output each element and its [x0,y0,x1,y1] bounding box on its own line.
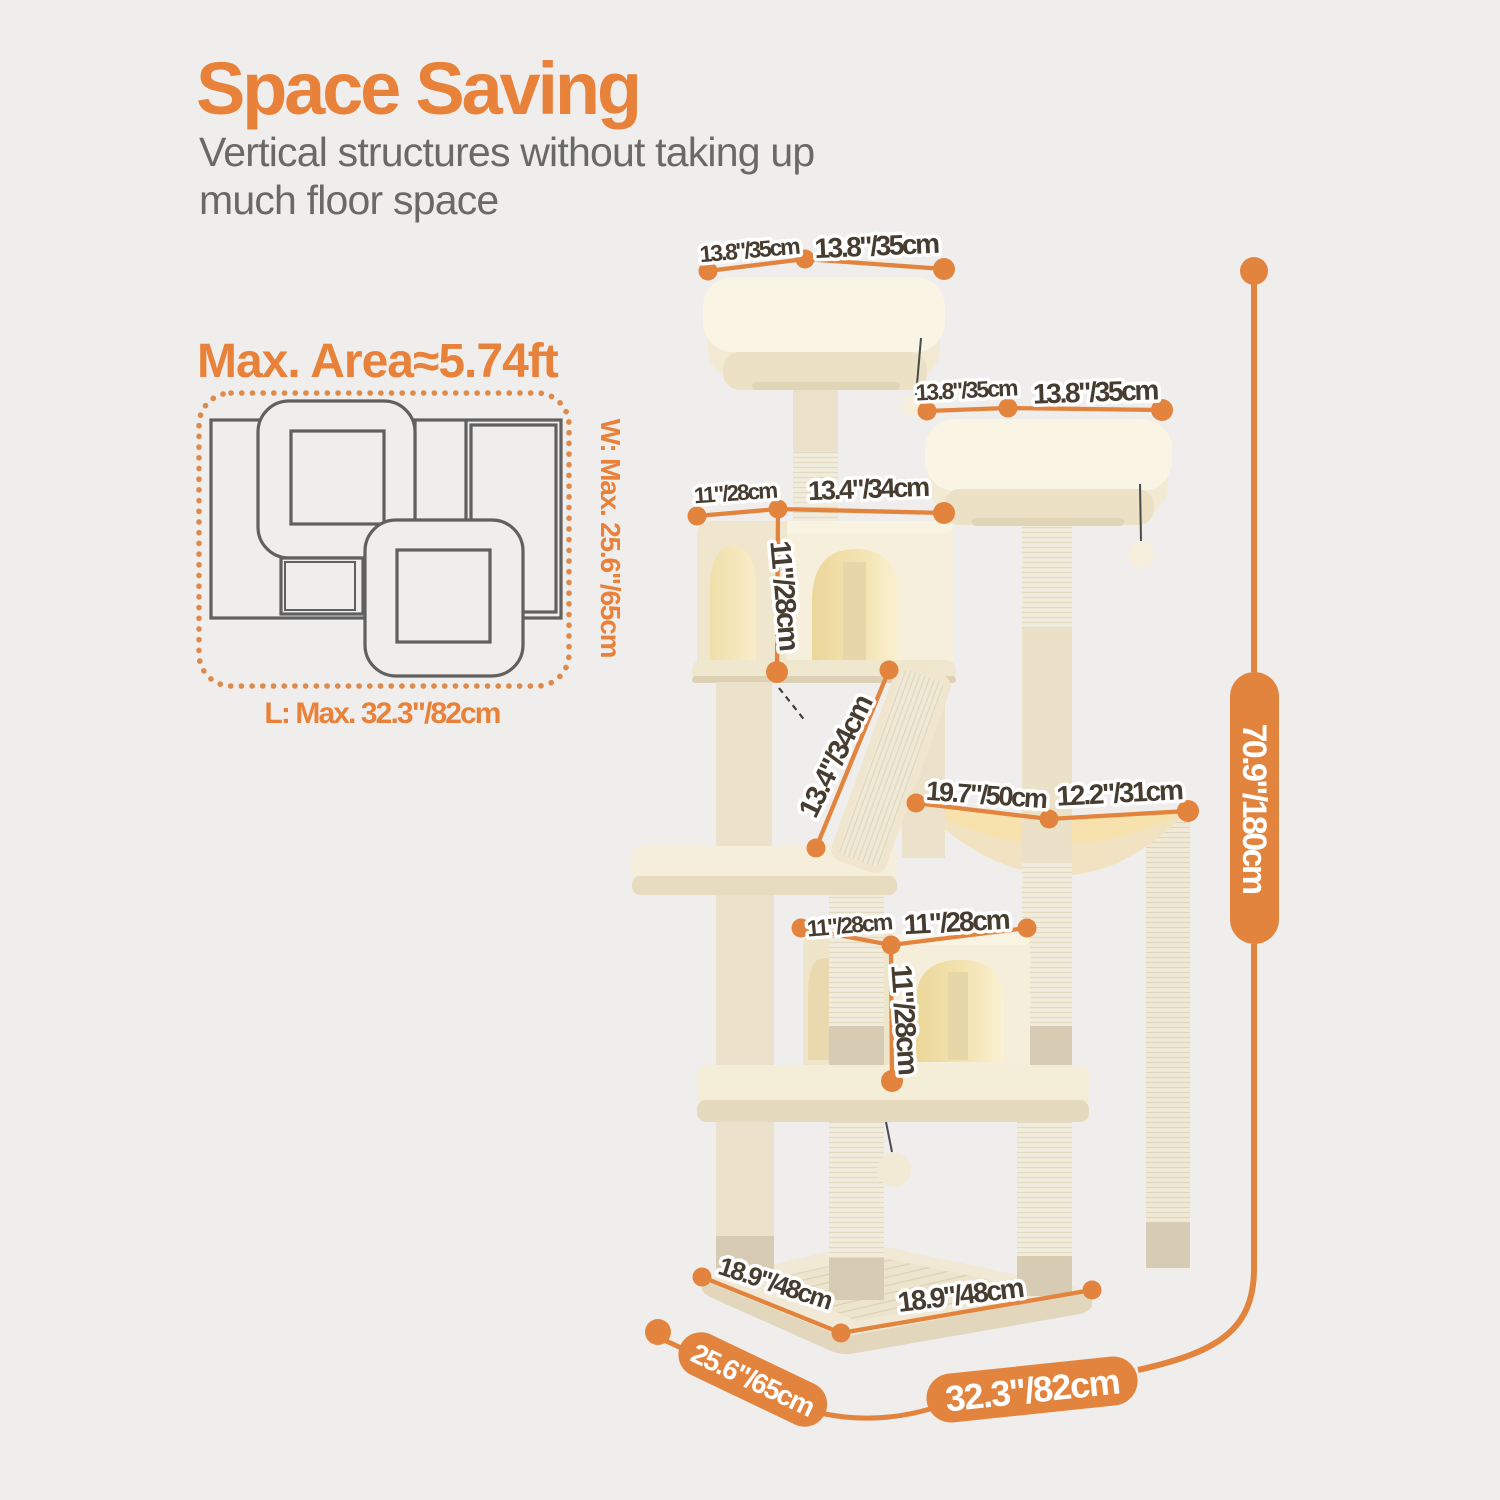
svg-text:13.8"/35cm: 13.8"/35cm [814,228,940,264]
svg-text:Vertical structures without ta: Vertical structures without taking up [199,129,814,175]
svg-text:Max. Area≈5.74ft: Max. Area≈5.74ft [197,335,559,388]
svg-text:13.4"/34cm: 13.4"/34cm [808,472,930,506]
svg-text:W: Max. 25.6"/65cm: W: Max. 25.6"/65cm [595,419,626,658]
svg-text:13.8"/35cm: 13.8"/35cm [915,374,1019,405]
svg-text:13.8"/35cm: 13.8"/35cm [1032,374,1159,409]
svg-text:L: Max. 32.3"/82cm: L: Max. 32.3"/82cm [264,697,499,730]
svg-text:12.2"/31cm: 12.2"/31cm [1056,774,1184,812]
svg-text:70.9"/180cm: 70.9"/180cm [1235,723,1273,893]
svg-text:11"/28cm: 11"/28cm [903,904,1010,941]
svg-text:Space Saving: Space Saving [196,47,639,130]
svg-text:much floor space: much floor space [199,177,498,223]
